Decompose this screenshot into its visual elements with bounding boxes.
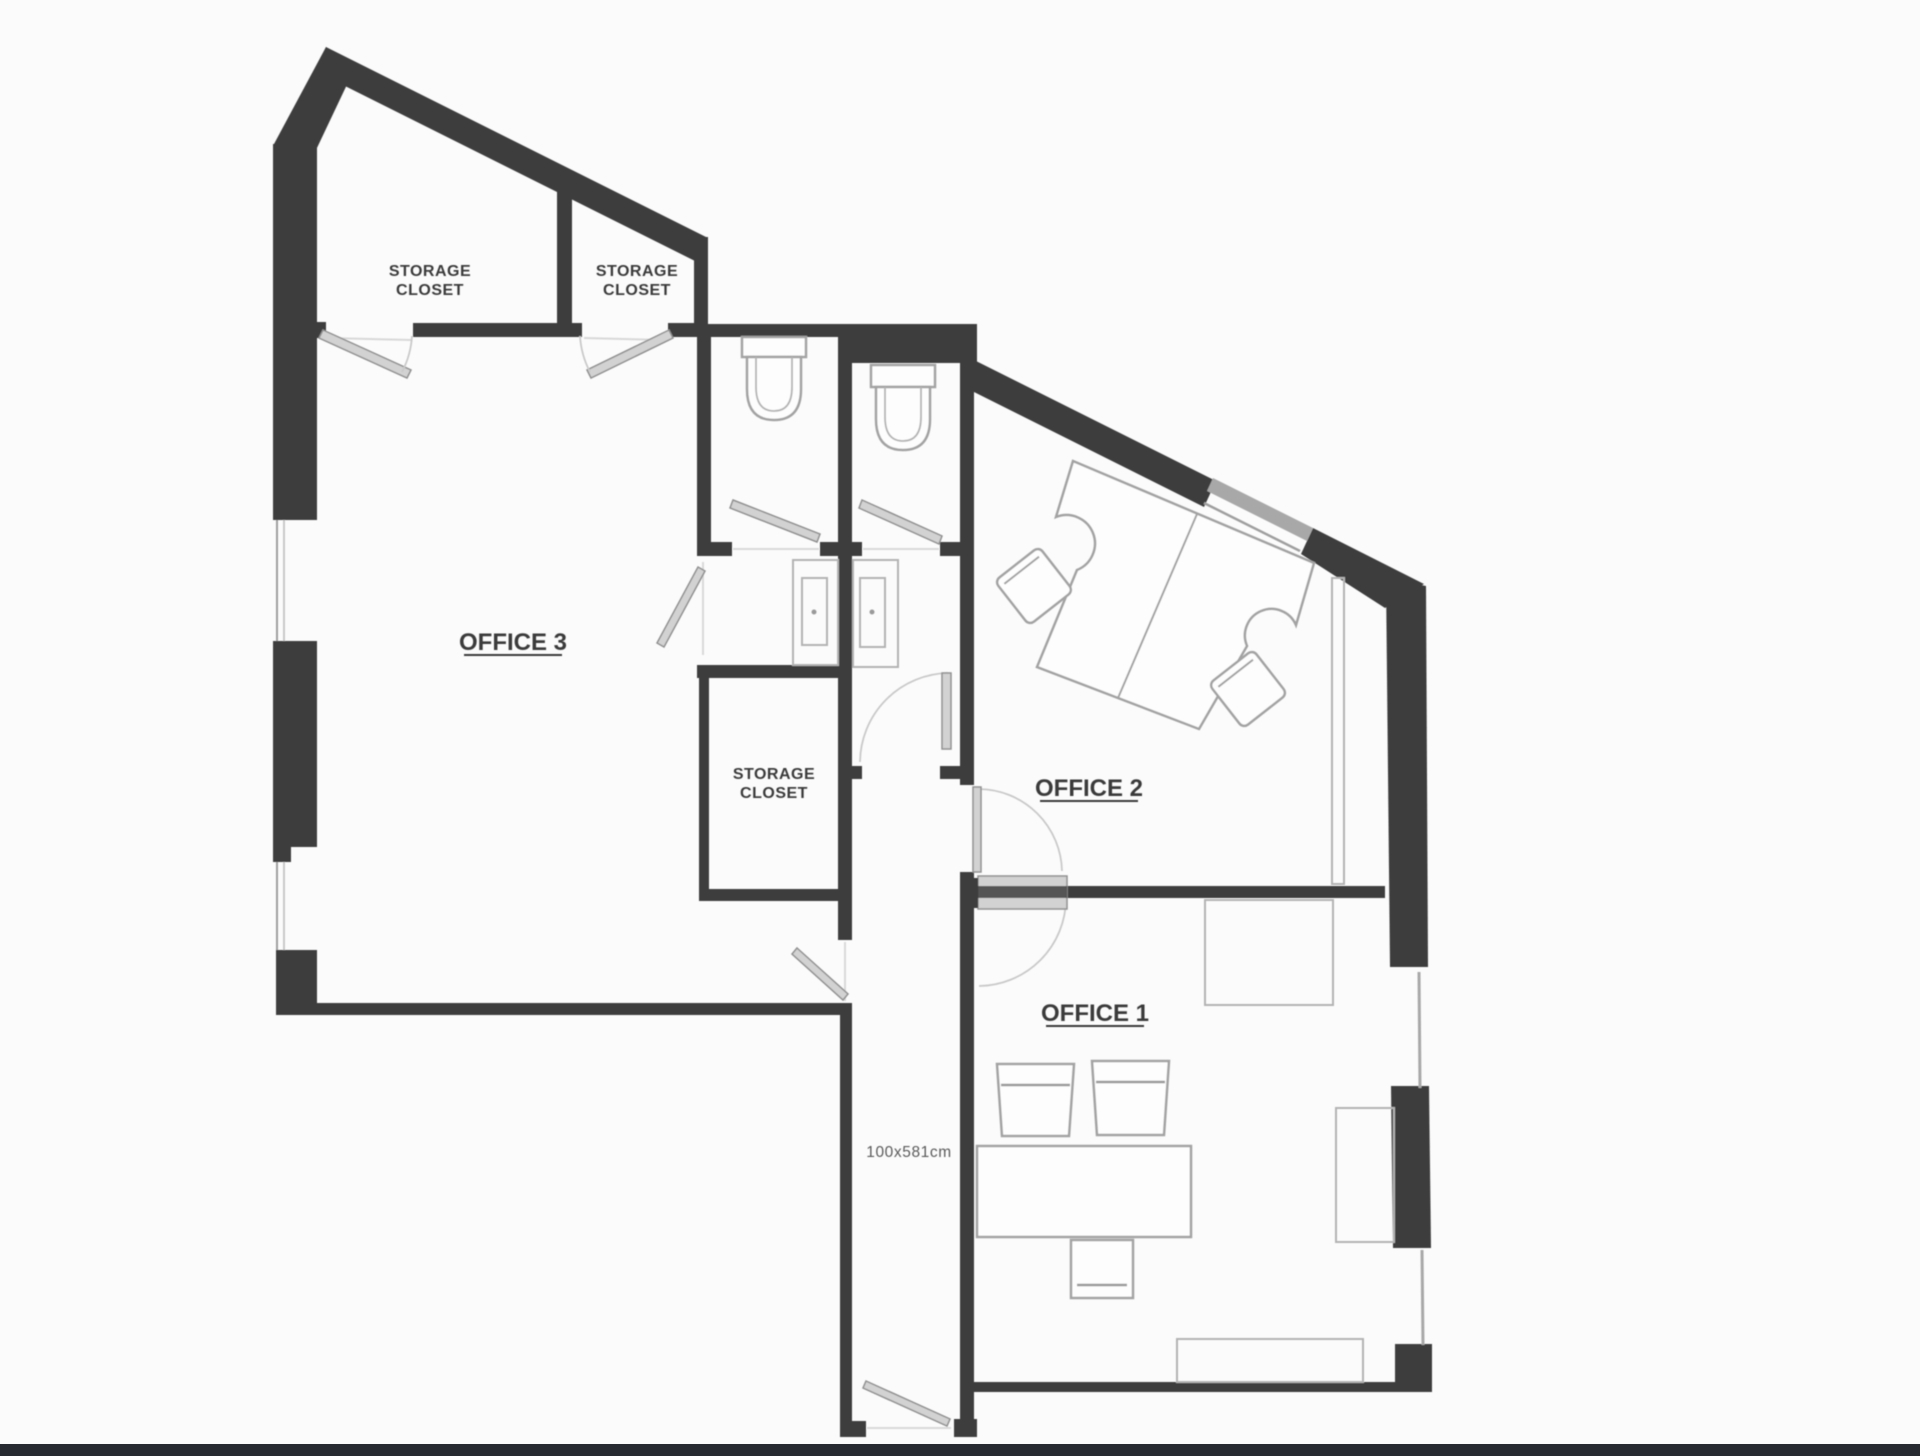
- svg-text:OFFICE 3: OFFICE 3: [459, 629, 567, 656]
- svg-text:STORAGE: STORAGE: [596, 263, 678, 280]
- svg-text:100x581cm: 100x581cm: [866, 1144, 952, 1161]
- svg-text:STORAGE: STORAGE: [389, 263, 471, 280]
- svg-text:CLOSET: CLOSET: [603, 282, 671, 299]
- svg-text:CLOSET: CLOSET: [396, 282, 464, 299]
- svg-text:STORAGE: STORAGE: [733, 766, 815, 783]
- svg-text:OFFICE 1: OFFICE 1: [1041, 1000, 1149, 1027]
- svg-text:CLOSET: CLOSET: [740, 785, 808, 802]
- svg-text:OFFICE 2: OFFICE 2: [1035, 775, 1143, 802]
